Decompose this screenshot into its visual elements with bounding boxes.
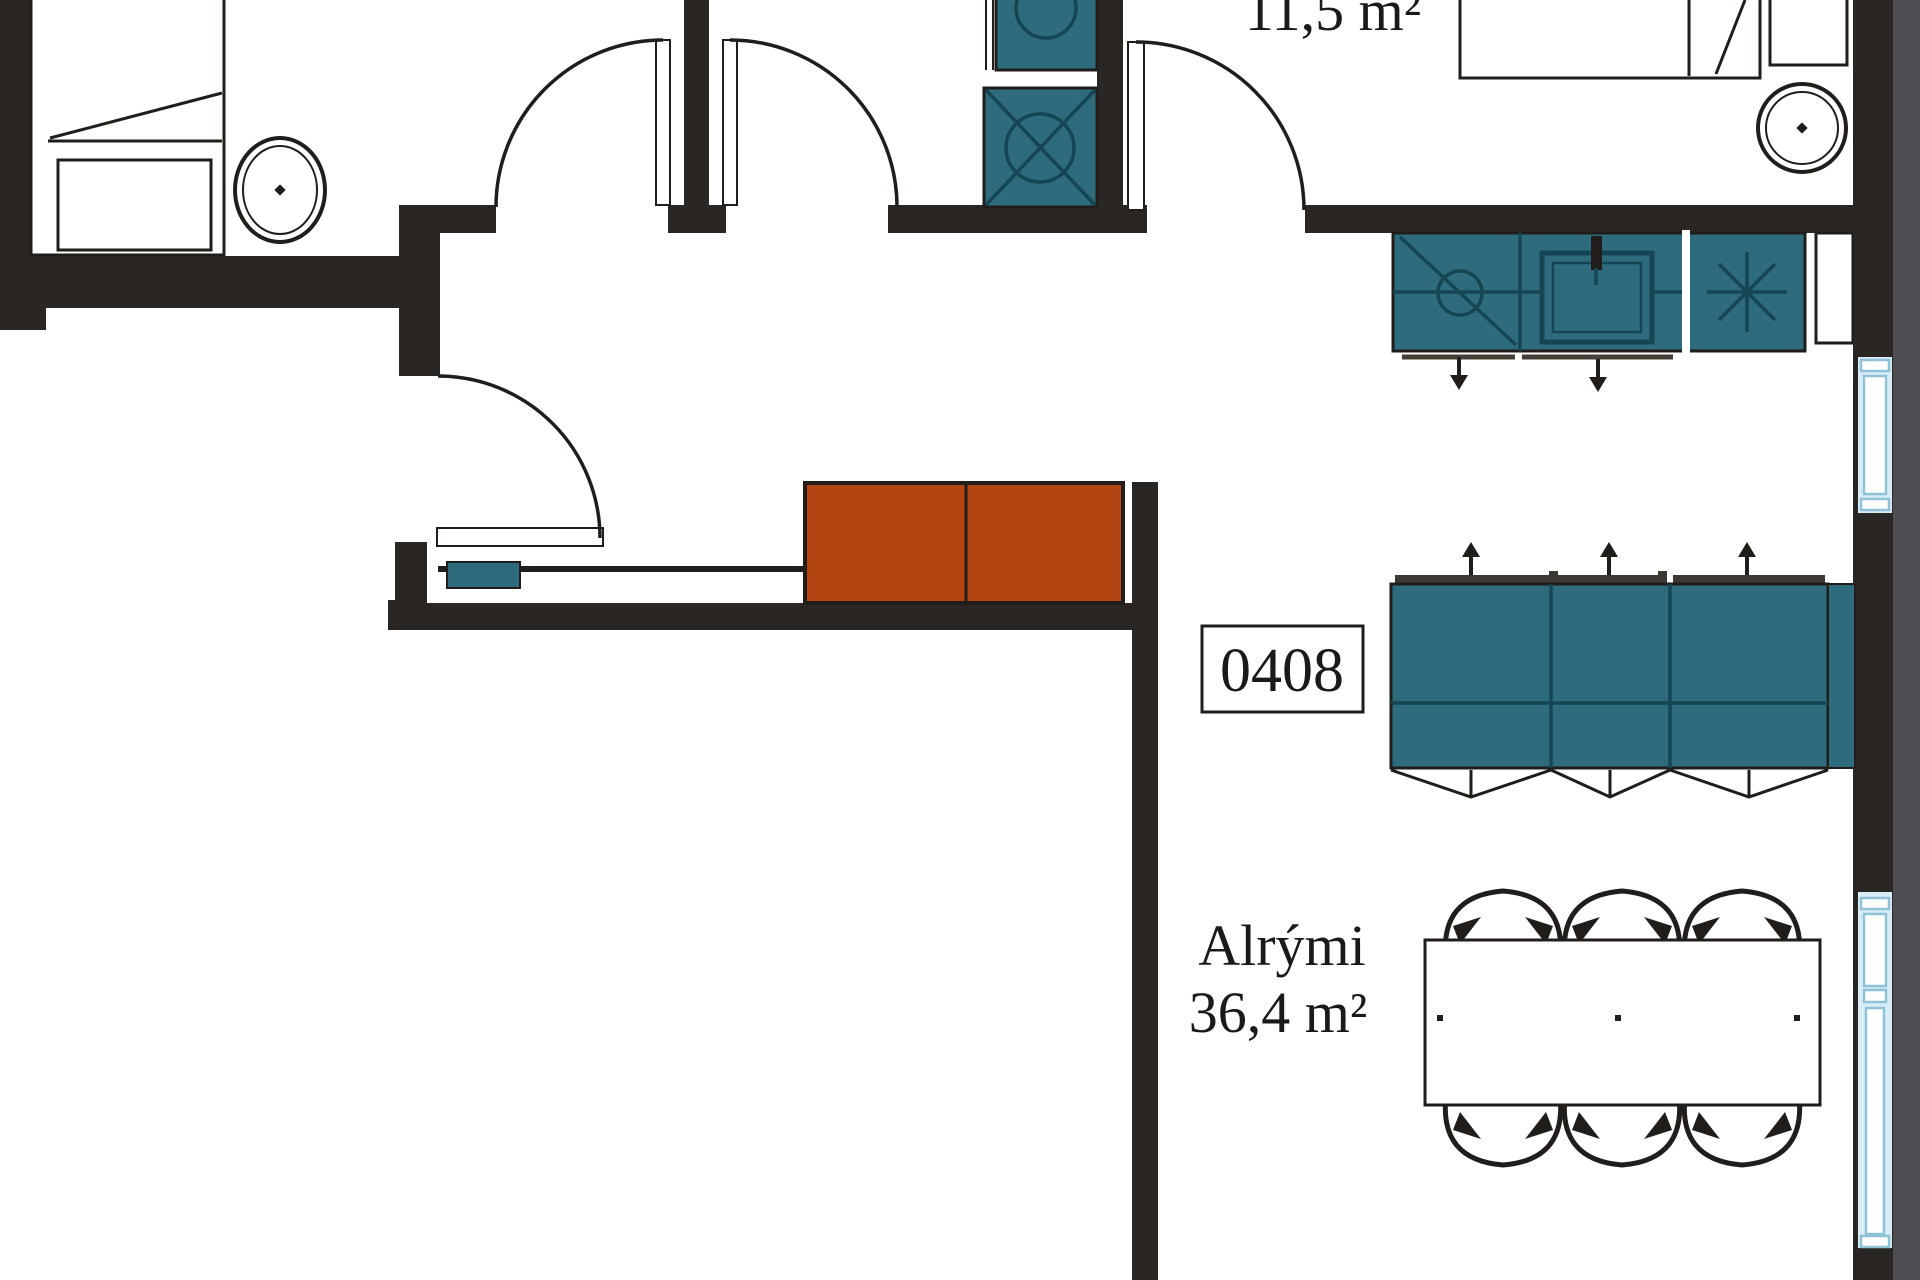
stove-icon [1707, 252, 1787, 332]
unit-number-box: 0408 [1202, 626, 1363, 712]
bed1-footboard [58, 160, 211, 250]
doors [437, 40, 1304, 546]
nightstand [1770, 0, 1847, 65]
wall-door-jamb-center [668, 205, 726, 233]
bedroom1 [31, 0, 325, 255]
wardrobe-arrow-icon [1738, 542, 1756, 575]
wardrobe [1391, 542, 1855, 797]
radiator-icon [447, 562, 520, 588]
unit-number-label: 0408 [1220, 637, 1344, 705]
dining-table [1425, 940, 1820, 1105]
living-room-name-label: Alrými [1198, 913, 1366, 978]
wardrobe-arrow-icon [1462, 542, 1480, 575]
door-bedroom1 [496, 40, 670, 207]
washing-machine-icon [996, 0, 1097, 70]
door-bedroom3 [1128, 42, 1304, 210]
floor-plan: 11,5 m² [0, 0, 1920, 1280]
door-bathroom [437, 376, 603, 546]
wall-hall-south [390, 603, 1158, 630]
wall-bedroom1-south [0, 256, 440, 308]
living-room-area-label: 36,4 m² [1189, 980, 1368, 1045]
stool2-icon [1758, 84, 1846, 172]
dishwasher-open-arrow-icon [1450, 357, 1468, 390]
wall-corridor-north-c [1305, 205, 1853, 233]
kitchen [1393, 230, 1853, 392]
stool1-icon [235, 138, 325, 242]
wardrobe-arrow-icon [1600, 542, 1618, 575]
door-bedroom2 [723, 40, 897, 207]
bedroom2: 11,5 m² [1245, 0, 1847, 172]
wall-living-west [1132, 482, 1158, 1280]
cabinet-open-arrow-icon [1589, 359, 1607, 392]
wall-bath-east [399, 205, 440, 376]
bed2 [1460, 0, 1760, 78]
dryer-icon [984, 88, 1097, 207]
wall-center-top [684, 0, 709, 205]
wall-closet-east [1097, 0, 1123, 233]
facade-strip [1893, 0, 1920, 1280]
window-living [1858, 892, 1892, 1248]
laundry-closet [984, 0, 1097, 207]
bedroom2-area-label: 11,5 m² [1245, 0, 1421, 43]
counter-gap [1682, 230, 1690, 354]
fridge-icon [1816, 233, 1853, 343]
window-kitchen [1858, 357, 1892, 513]
sofa [805, 483, 1123, 603]
